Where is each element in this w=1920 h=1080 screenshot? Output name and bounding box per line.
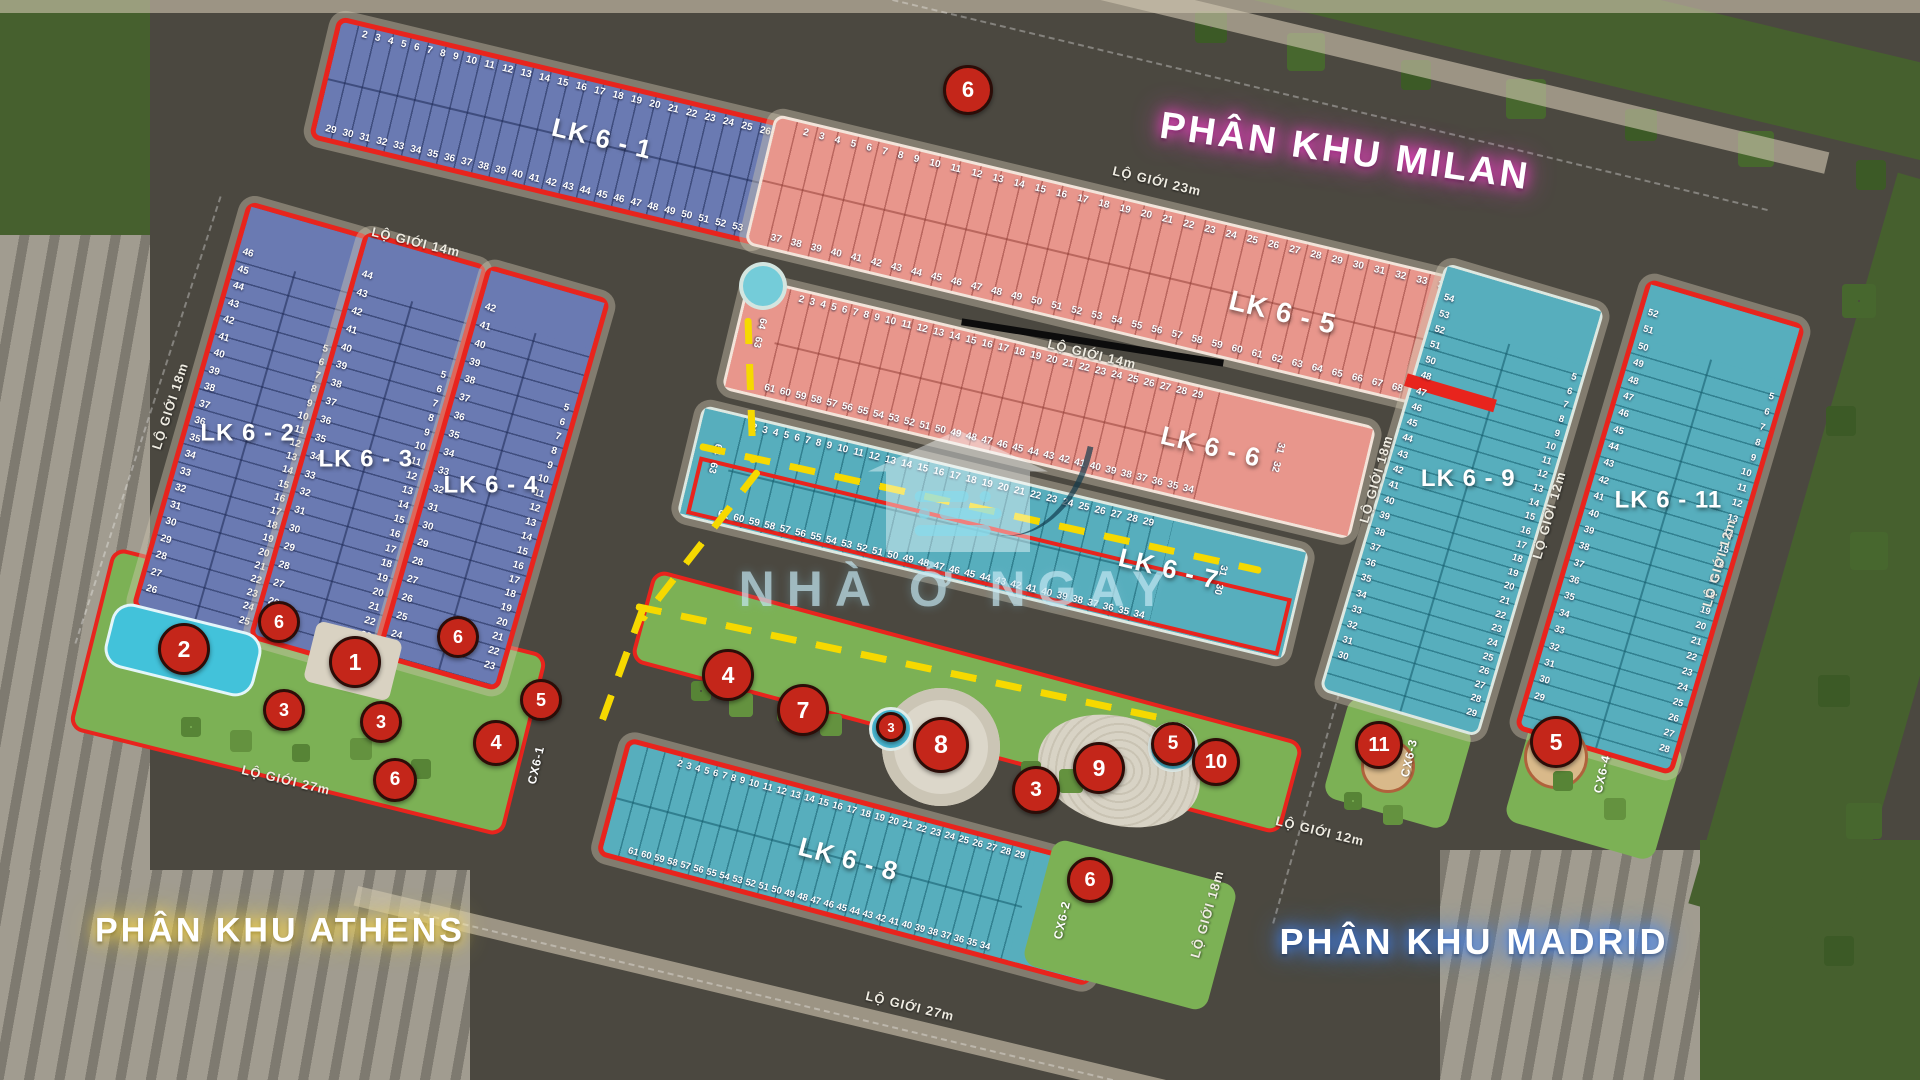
lot-number: 11	[761, 782, 773, 794]
amenity-marker: 6	[1067, 857, 1113, 903]
lot-number: 6	[413, 43, 421, 54]
lot-number: 38	[1373, 526, 1386, 538]
lot-number: 11	[900, 319, 913, 331]
lot-number: 39	[1378, 511, 1391, 523]
zone-label-athens: PHÂN KHU ATHENS	[95, 912, 465, 951]
block-label: LK 6 - 9	[1421, 465, 1516, 493]
lot-number: 9	[739, 776, 747, 787]
lot-number: 10	[747, 778, 760, 790]
lot-number: 8	[730, 773, 738, 784]
lot-number: 9	[825, 441, 833, 452]
lot-number: 2	[361, 30, 369, 41]
lot-number: 52	[1647, 308, 1660, 320]
lot-number: 3	[818, 132, 826, 143]
lot-number: 54	[718, 870, 731, 882]
amenity-marker: 3	[876, 712, 906, 742]
amenity-marker: 5	[1151, 722, 1195, 766]
lot-number: 57	[679, 860, 692, 872]
amenity-marker: 6	[943, 65, 993, 115]
lot-number: 3	[808, 297, 816, 308]
lot-number: 37	[1573, 558, 1586, 570]
lot-number: 5	[849, 139, 857, 150]
amenity-marker: 3	[263, 689, 305, 731]
lot-number: 50	[1637, 341, 1650, 353]
lot-number: 49	[783, 888, 796, 900]
park-label-cx6-1: CX6-1	[525, 744, 547, 785]
lot-number: 56	[692, 863, 705, 875]
lot-number: 48	[1627, 375, 1640, 387]
amenity-marker: 4	[473, 720, 519, 766]
lot-number: 40	[900, 919, 913, 931]
lot-number: 7	[426, 46, 434, 57]
amenity-marker: 10	[1192, 738, 1240, 786]
lot-number: 44	[1401, 433, 1414, 445]
lot-number: 2	[797, 295, 805, 306]
lot-number: 16	[831, 801, 844, 813]
lot-number: 46	[822, 898, 835, 910]
lot-number: 45	[835, 902, 848, 914]
lot-number: 4	[387, 36, 395, 47]
lot-number: 29	[1013, 849, 1026, 861]
lot-number: 35	[966, 937, 979, 949]
trees-cx-parks	[1352, 800, 1354, 802]
green-area-top-left	[0, 0, 150, 235]
lot-number: 34	[979, 940, 992, 952]
lot-number: 52	[744, 877, 757, 889]
lot-number: 29	[1533, 691, 1546, 703]
lot-number: 48	[1419, 371, 1432, 383]
lot-number: 25	[957, 834, 970, 846]
lot-number: 8	[814, 438, 822, 449]
lot-number: 36	[1568, 574, 1581, 586]
lot-number: 11	[949, 163, 962, 175]
lot-number: 51	[1429, 340, 1442, 352]
lot-number: 21	[901, 819, 914, 831]
lot-number: 15	[817, 797, 830, 809]
lot-number: 52	[1433, 324, 1446, 336]
lot-number: 58	[666, 856, 679, 868]
lot-number: 43	[861, 909, 874, 921]
block-label: LK 6 - 3	[318, 446, 413, 474]
lot-number: 26	[971, 838, 984, 850]
zone-label-milan: PHÂN KHU MILAN	[1157, 105, 1533, 200]
lot-number: 3	[685, 761, 693, 772]
lot-number: 33	[1553, 624, 1566, 636]
trees-right	[1858, 300, 1860, 302]
amenity-marker: 6	[437, 616, 479, 658]
amenity-marker: 8	[913, 717, 969, 773]
lot-number: 47	[1415, 386, 1428, 398]
amenity-marker: 11	[1355, 721, 1403, 769]
lot-number: 9	[452, 52, 460, 63]
lot-number: 51	[757, 881, 770, 893]
lot-number: 31	[1543, 658, 1556, 670]
lot-number: 24	[943, 831, 956, 843]
lot-number: 2	[676, 759, 684, 770]
lot-number: 38	[927, 926, 940, 938]
lot-number: 53	[1438, 309, 1451, 321]
amenity-marker: 9	[1073, 742, 1125, 794]
lot-number: 47	[809, 895, 822, 907]
lot-number: 19	[873, 812, 886, 824]
block-label: LK 6 - 11	[1614, 487, 1722, 515]
lot-number: 3	[374, 33, 382, 44]
lot-number: 22	[915, 823, 928, 835]
lot-number: 2	[802, 128, 810, 139]
lot-number: 5	[400, 39, 408, 50]
lot-number: 35	[1359, 573, 1372, 585]
lot-number: 4	[694, 764, 702, 775]
lot-number: 5	[830, 302, 838, 313]
zone-label-madrid: PHÂN KHU MADRID	[1280, 921, 1669, 963]
lot-number: 55	[705, 867, 718, 879]
lot-number: 39	[1582, 525, 1595, 537]
lot-number: 50	[770, 884, 783, 896]
lot-number: 5	[782, 431, 790, 442]
lot-number: 37	[940, 930, 953, 942]
lot-number: 40	[1587, 508, 1600, 520]
lot-number: 5	[703, 766, 711, 777]
lot-number: 41	[1592, 491, 1605, 503]
trees-left-park	[190, 726, 192, 728]
amenity-marker: 7	[777, 684, 829, 736]
lot-number: 7	[851, 308, 859, 319]
lot-number: 13	[789, 789, 802, 801]
amenity-marker: 5	[1530, 716, 1582, 768]
trees-central-park	[700, 690, 702, 692]
lot-number: 48	[796, 891, 809, 903]
block-label: LK 6 - 2	[200, 420, 295, 448]
amenity-marker: 3	[360, 701, 402, 743]
lot-number: 51	[1642, 325, 1655, 337]
amenity-marker: 3	[1012, 766, 1060, 814]
lot-number: 61	[627, 846, 640, 858]
lot-number: 6	[712, 769, 720, 780]
lot-number: 60	[640, 849, 653, 861]
lot-number: 49	[1632, 358, 1645, 370]
lot-number: 6	[841, 305, 849, 316]
lot-number: 42	[1597, 475, 1610, 487]
lot-number: 43	[1396, 449, 1409, 461]
lot-number: 18	[859, 808, 872, 820]
lot-number: 38	[1577, 541, 1590, 553]
lot-number: 33	[1350, 604, 1363, 616]
lot-number: 12	[775, 786, 788, 798]
lot-number: 36	[1364, 557, 1377, 569]
amenity-marker: 2	[158, 623, 210, 675]
lot-number: 42	[1392, 464, 1405, 476]
yellow-dashed-line	[597, 608, 646, 728]
lot-number: 31	[1341, 635, 1354, 647]
amenity-marker: 4	[702, 649, 754, 701]
lot-number: 46	[1617, 408, 1630, 420]
amenity-marker: 1	[329, 636, 381, 688]
lot-number: 8	[439, 49, 447, 60]
lot-number: 8	[897, 151, 905, 162]
lot-number: 23	[929, 827, 942, 839]
lot-number: 6	[793, 433, 801, 444]
lot-number: 14	[803, 793, 816, 805]
lot-number: 44	[1607, 441, 1620, 453]
lot-number: 4	[772, 428, 780, 439]
lot-number: 35	[1563, 591, 1576, 603]
lot-number: 30	[1538, 674, 1551, 686]
lot-number: 34	[1355, 589, 1368, 601]
lot-number: 32	[1346, 620, 1359, 632]
sidewalk-top	[0, 0, 1920, 13]
lot-number: 11	[852, 447, 865, 459]
lot-number: 8	[862, 310, 870, 321]
lot-number: 4	[833, 135, 841, 146]
lot-number: 50	[1424, 355, 1437, 367]
lot-number: 17	[845, 804, 858, 816]
lot-number: 3	[761, 425, 769, 436]
road-label: LỘ GIỚI 23m	[1111, 163, 1203, 199]
lot-number: 54	[1442, 293, 1455, 305]
lot-number: 7	[804, 436, 812, 447]
lot-number: 45	[1406, 417, 1419, 429]
lot-number: 45	[1612, 425, 1625, 437]
lot-number: 32	[1548, 641, 1561, 653]
lot-number: 9	[873, 313, 881, 324]
amenity-marker: 5	[520, 679, 562, 721]
lot-number: 39	[913, 923, 926, 935]
block-label: LK 6 - 4	[443, 472, 538, 500]
lot-number: 4	[819, 300, 827, 311]
road-label: LỘ GIỚI 12m	[1274, 813, 1366, 849]
lot-number: 42	[874, 912, 887, 924]
lot-number: 37	[1369, 542, 1382, 554]
lot-number: 7	[721, 771, 729, 782]
block-lk6-1: 2345678910111213141516171819202122232425…	[309, 16, 788, 246]
lot-number: 11	[483, 59, 496, 71]
lot-number: 44	[848, 905, 861, 917]
lot-number: 40	[1382, 495, 1395, 507]
lot-number: 9	[912, 154, 920, 165]
lot-number: 46	[1410, 402, 1423, 414]
lot-number: 53	[731, 874, 744, 886]
lot-number: 7	[881, 147, 889, 158]
lot-number: 41	[1387, 480, 1400, 492]
amenity-marker: 6	[373, 758, 417, 802]
fountain-roundabout	[739, 262, 787, 310]
master-plan-map: 2345678910111213141516171819202122232425…	[0, 0, 1920, 1080]
lot-number: 47	[1622, 391, 1635, 403]
lot-number: 36	[953, 933, 966, 945]
lot-number: 34	[1558, 608, 1571, 620]
lot-number: 27	[985, 842, 998, 854]
amenity-marker: 6	[258, 601, 300, 643]
lot-number: 41	[887, 916, 900, 928]
lot-number: 6	[865, 143, 873, 154]
lot-number: 28	[999, 846, 1012, 858]
lot-number: 59	[653, 853, 666, 865]
lot-number: 20	[887, 816, 900, 828]
lot-number: 43	[1602, 458, 1615, 470]
